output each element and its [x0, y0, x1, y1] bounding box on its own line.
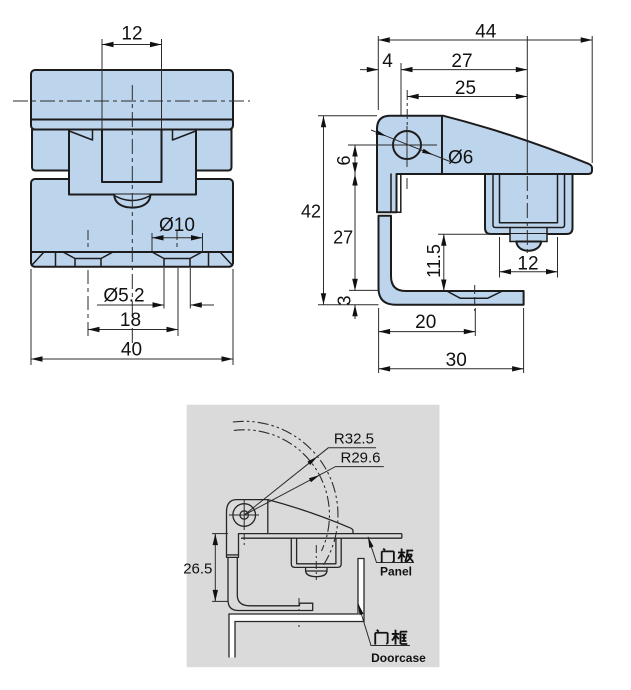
svg-text:20: 20 — [415, 312, 436, 333]
svg-text:30: 30 — [446, 350, 467, 371]
svg-text:26.5: 26.5 — [183, 560, 212, 577]
svg-text:4: 4 — [382, 51, 393, 72]
svg-text:12: 12 — [121, 24, 142, 45]
svg-text:6: 6 — [334, 155, 354, 165]
svg-text:25: 25 — [455, 78, 476, 99]
svg-text:42: 42 — [301, 202, 321, 222]
svg-text:Ø5.2: Ø5.2 — [103, 286, 144, 307]
svg-text:Doorcase: Doorcase — [371, 651, 426, 665]
svg-text:18: 18 — [120, 310, 141, 331]
svg-text:40: 40 — [121, 340, 142, 361]
svg-text:44: 44 — [475, 22, 497, 43]
svg-text:Panel: Panel — [380, 565, 412, 579]
svg-text:11.5: 11.5 — [424, 244, 444, 278]
svg-text:Ø6: Ø6 — [448, 148, 473, 169]
svg-text:12: 12 — [517, 254, 538, 275]
svg-text:3: 3 — [335, 295, 355, 305]
svg-text:27: 27 — [451, 51, 472, 72]
svg-text:27: 27 — [333, 228, 353, 248]
svg-text:Ø10: Ø10 — [159, 215, 195, 236]
svg-text:R32.5: R32.5 — [334, 430, 374, 447]
svg-text:R29.6: R29.6 — [341, 450, 381, 467]
